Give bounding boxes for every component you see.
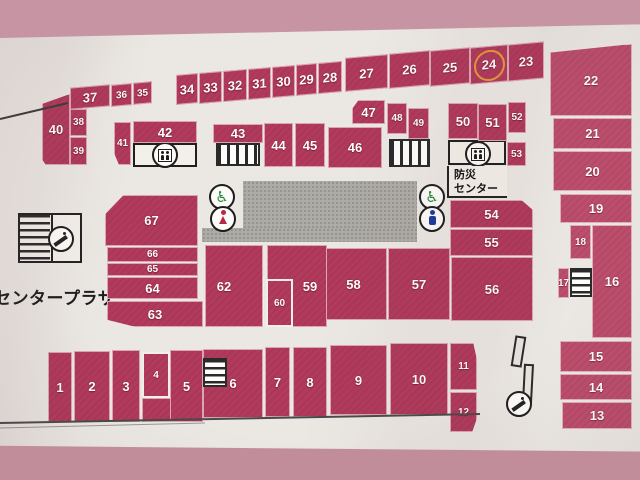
map-unit-58: 58	[320, 248, 387, 320]
map-unit-11: 11	[450, 343, 477, 390]
floor-map: ♿ ♿ 防災 センター センタープラザ 12345678910111213141…	[0, 0, 640, 480]
map-unit-26: 26	[389, 50, 430, 89]
map-unit-2: 2	[74, 351, 110, 422]
disaster-center-line2: センター	[454, 182, 507, 196]
unit-number: 14	[589, 380, 603, 395]
map-unit-31: 31	[248, 67, 271, 100]
unit-number: 46	[348, 140, 362, 155]
unit-number: 11	[458, 361, 469, 372]
map-unit-57: 57	[388, 248, 450, 320]
highlight-circle	[474, 48, 505, 82]
unit-number: 66	[147, 249, 158, 260]
map-unit-10: 10	[390, 343, 448, 415]
unit-number: 30	[276, 73, 290, 89]
unit-number: 3	[122, 379, 129, 394]
unit-number: 62	[217, 279, 231, 294]
map-unit-17: 17	[558, 268, 569, 298]
map-unit-35: 35	[133, 81, 152, 105]
unit-number: 13	[590, 408, 604, 423]
unit-number: 45	[303, 138, 317, 153]
map-unit-25: 25	[430, 47, 470, 86]
wheelchair-glyph: ♿	[215, 190, 228, 205]
map-unit-67: 67	[105, 195, 198, 246]
unit-number: 12	[458, 407, 469, 418]
disaster-center-line1: 防災	[454, 168, 507, 182]
unit-number: 27	[359, 65, 373, 81]
map-unit-44: 44	[264, 123, 293, 167]
map-unit-5: 5	[170, 350, 203, 422]
map-unit-51: 51	[478, 104, 507, 141]
unit-number: 55	[484, 235, 498, 250]
map-unit-34: 34	[176, 73, 198, 105]
unit-number: 34	[180, 81, 194, 97]
unit-number: 37	[83, 89, 97, 105]
map-unit-62: 62	[205, 245, 263, 327]
unit-number: 32	[228, 77, 242, 93]
map-unit-40: 40	[42, 94, 70, 165]
map-unit-14: 14	[560, 374, 632, 400]
unit-number: 58	[346, 277, 360, 292]
unit-number: 8	[306, 375, 313, 390]
unit-number: 38	[73, 117, 84, 128]
unit-number: 16	[605, 274, 619, 289]
map-unit-45: 45	[295, 123, 325, 167]
unit-number: 25	[443, 59, 457, 75]
unit-number: 35	[137, 87, 148, 99]
unit-number: 41	[117, 138, 128, 149]
stairs-icon	[20, 215, 50, 261]
map-unit-66: 66	[107, 247, 198, 262]
unit-number: 21	[585, 126, 599, 141]
map-unit-24: 24	[470, 44, 508, 84]
disaster-center-label: 防災 センター	[447, 166, 507, 198]
map-unit-3: 3	[112, 350, 140, 422]
unit-number: 10	[412, 372, 426, 387]
map-unit-41: 41	[114, 122, 131, 165]
unit-number: 31	[252, 75, 266, 91]
map-unit-13: 13	[562, 402, 632, 429]
unit-number: 65	[147, 264, 158, 275]
map-unit-16: 16	[592, 225, 632, 338]
unit-number: 1	[56, 380, 63, 395]
unit-number: 17	[558, 278, 569, 289]
unit-number: 47	[361, 105, 375, 120]
map-unit-55: 55	[450, 229, 533, 256]
stairs-icon	[570, 268, 592, 297]
map-unit-36: 36	[111, 83, 132, 107]
unit-number: 29	[299, 71, 313, 87]
map-unit-23: 23	[508, 41, 544, 81]
map-unit-28: 28	[318, 61, 342, 94]
map-unit-38: 38	[70, 109, 87, 136]
unit-number: 43	[231, 126, 245, 141]
map-unit-30: 30	[272, 65, 295, 98]
female-restroom-icon	[210, 206, 236, 232]
unit-number: 19	[589, 201, 603, 216]
unit-number: 39	[73, 146, 84, 157]
male-restroom-icon	[419, 206, 445, 232]
map-unit-63: 63	[107, 301, 203, 327]
map-unit-42: 42	[133, 121, 197, 143]
unit-number: 6	[229, 376, 236, 391]
unit-number: 7	[274, 375, 281, 390]
unit-number: 40	[49, 122, 63, 137]
unit-number: 33	[203, 79, 217, 95]
map-unit-9: 9	[330, 345, 387, 415]
map-unit-27: 27	[345, 54, 388, 92]
map-unit-53: 53	[507, 142, 526, 166]
unit-number: 53	[511, 149, 522, 160]
unit-number: 9	[355, 373, 362, 388]
unit-number: 57	[412, 277, 426, 292]
map-unit-7: 7	[265, 347, 290, 417]
unit-number: 36	[116, 89, 127, 101]
corridor-area	[243, 181, 417, 228]
stairs-icon	[203, 358, 227, 387]
unit-number: 4	[153, 370, 159, 381]
escalator-icon	[506, 391, 532, 417]
unit-number: 15	[589, 349, 603, 364]
unit-number: 20	[585, 164, 599, 179]
map-unit-50: 50	[448, 103, 478, 139]
map-unit-12: 12	[450, 392, 477, 432]
map-unit-4: 4	[142, 352, 170, 398]
map-unit-8: 8	[293, 347, 327, 417]
floor-map-photo: { "map_title": "センタープラザ フロアマップ", "labels…	[0, 0, 640, 480]
map-unit-39: 39	[70, 137, 87, 165]
map-unit-filler	[142, 398, 172, 422]
map-unit-18: 18	[570, 225, 591, 259]
unit-number: 26	[402, 61, 416, 77]
elevator-icon	[465, 141, 491, 167]
map-unit-37: 37	[70, 84, 110, 109]
map-unit-64: 64	[107, 277, 198, 299]
map-unit-15: 15	[560, 341, 632, 372]
unit-number: 2	[88, 379, 95, 394]
map-unit-1: 1	[48, 352, 72, 422]
unit-number: 67	[144, 213, 158, 228]
stairs-icon	[389, 139, 430, 167]
unit-number: 50	[456, 114, 470, 129]
map-unit-20: 20	[553, 151, 632, 191]
unit-number: 54	[484, 207, 498, 222]
unit-number: 28	[323, 69, 337, 85]
unit-number: 23	[519, 53, 533, 69]
map-unit-60: 60	[266, 279, 293, 327]
center-plaza-label: センタープラザ	[0, 284, 115, 309]
corridor-area	[202, 228, 417, 242]
stairs-icon	[216, 143, 260, 166]
map-unit-52: 52	[508, 102, 526, 133]
map-unit-29: 29	[296, 63, 317, 96]
map-unit-56: 56	[451, 257, 533, 321]
map-unit-46: 46	[328, 127, 382, 168]
unit-number: 48	[391, 113, 402, 124]
unit-number: 56	[485, 282, 499, 297]
map-unit-32: 32	[223, 69, 247, 102]
unit-number: 5	[183, 379, 190, 394]
map-unit-49: 49	[408, 108, 429, 139]
map-unit-21: 21	[553, 118, 632, 149]
unit-number: 18	[575, 237, 586, 248]
map-unit-47: 47	[352, 100, 385, 124]
map-unit-43: 43	[213, 124, 263, 143]
map-unit-48: 48	[387, 103, 407, 134]
unit-number: 59	[303, 279, 317, 294]
escalator-icon	[48, 226, 74, 252]
unit-number: 60	[274, 298, 285, 309]
unit-number: 49	[413, 118, 424, 129]
unit-number: 64	[145, 281, 159, 296]
unit-number: 44	[271, 138, 285, 153]
unit-number: 63	[148, 307, 162, 322]
wheelchair-glyph: ♿	[425, 190, 438, 205]
map-unit-19: 19	[560, 194, 632, 223]
unit-number: 52	[511, 112, 522, 123]
map-unit-22: 22	[550, 44, 632, 116]
unit-number: 51	[485, 115, 499, 130]
unit-number: 22	[584, 73, 598, 88]
elevator-icon	[152, 142, 178, 168]
map-unit-65: 65	[107, 263, 198, 276]
map-unit-54: 54	[450, 200, 533, 228]
unit-number: 42	[158, 125, 172, 140]
map-unit-33: 33	[199, 71, 222, 104]
